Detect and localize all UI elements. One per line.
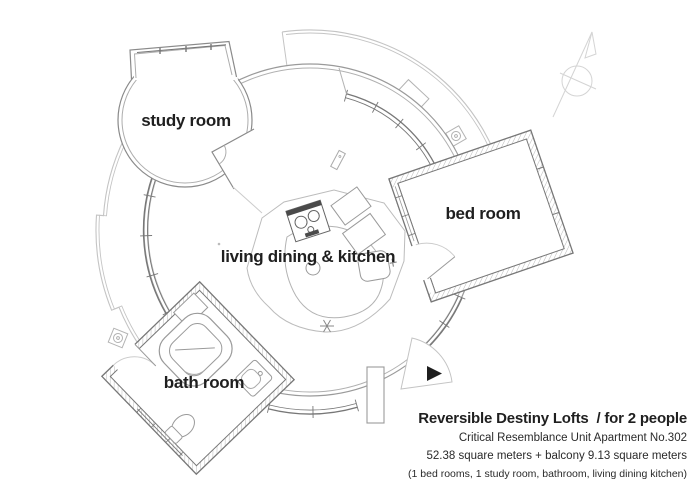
plan-room-list: (1 bed rooms, 1 study room, bathroom, li… [408, 468, 687, 480]
plan-title: Reversible Destiny Lofts / for 2 people [418, 410, 687, 427]
plan-unit-name: Critical Resemblance Unit Apartment No.3… [459, 432, 687, 444]
room-label-bath: bath room [164, 373, 245, 392]
room-label-study: study room [141, 111, 231, 130]
room-label-bed: bed room [445, 204, 520, 223]
room-label-living: living dining & kitchen [221, 247, 395, 266]
floor-plan-drawing: study room living dining & kitchen bed r… [0, 0, 700, 500]
plan-area: 52.38 square meters + balcony 9.13 squar… [427, 450, 688, 462]
dot-mark [218, 243, 221, 246]
entrance-pillar [367, 367, 384, 423]
floor-plan-page: study room living dining & kitchen bed r… [0, 0, 700, 500]
